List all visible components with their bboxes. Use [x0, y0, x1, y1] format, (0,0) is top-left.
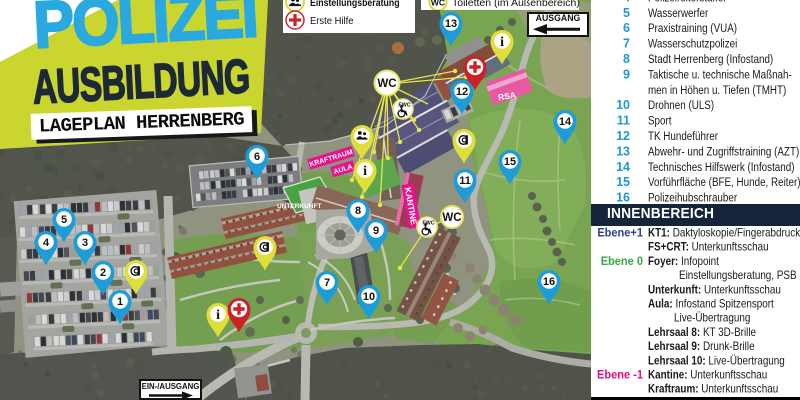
svg-text:FWC: FWC — [422, 221, 434, 227]
svg-text:12: 12 — [456, 86, 468, 98]
svg-text:7: 7 — [623, 37, 630, 51]
svg-text:3: 3 — [82, 237, 88, 249]
svg-text:WC: WC — [442, 212, 461, 224]
svg-text:i: i — [500, 35, 504, 50]
svg-text:Vorführfläche (BFE, Hunde, Rei: Vorführfläche (BFE, Hunde, Reiter) — [648, 176, 800, 189]
svg-text:5: 5 — [61, 214, 67, 226]
svg-text:Ebene 0: Ebene 0 — [601, 256, 643, 268]
svg-text:2: 2 — [100, 267, 106, 279]
svg-text:Sport: Sport — [648, 115, 672, 128]
svg-text:Ebene -1: Ebene -1 — [597, 369, 644, 381]
svg-text:WC: WC — [377, 78, 396, 90]
svg-text:Technisches Hilfswerk (Infosta: Technisches Hilfswerk (Infostand) — [648, 161, 795, 174]
svg-text:Kantine: Unterkunftsschau: Kantine: Unterkunftsschau — [648, 369, 767, 382]
svg-text:4: 4 — [623, 0, 630, 4]
svg-text:9: 9 — [623, 67, 630, 81]
svg-text:1: 1 — [117, 296, 123, 308]
svg-text:13: 13 — [445, 18, 457, 30]
svg-text:16: 16 — [543, 276, 555, 288]
svg-text:FWC: FWC — [398, 103, 410, 109]
svg-text:Einstellungsberatung, PSB: Einstellungsberatung, PSB — [679, 269, 797, 282]
svg-text:i: i — [216, 308, 220, 323]
svg-text:13: 13 — [616, 144, 630, 158]
svg-text:5: 5 — [623, 6, 630, 20]
svg-text:Lehrsaal 10: Live-Übertragung: Lehrsaal 10: Live-Übertragung — [648, 355, 785, 368]
svg-text:12: 12 — [616, 129, 630, 143]
svg-text:9: 9 — [373, 225, 379, 237]
svg-text:FS+CRT: Unterkunftsschau: FS+CRT: Unterkunftsschau — [648, 241, 769, 254]
svg-text:6: 6 — [623, 21, 630, 35]
svg-text:4: 4 — [43, 237, 50, 249]
svg-text:11: 11 — [459, 175, 471, 187]
svg-text:Unterkunft: Unterkunftsschau: Unterkunft: Unterkunftsschau — [648, 284, 781, 297]
svg-text:14: 14 — [559, 116, 572, 128]
svg-text:Lehrsaal 8: KT 3D-Brille: Lehrsaal 8: KT 3D-Brille — [648, 326, 756, 339]
svg-text:10: 10 — [363, 291, 375, 303]
svg-text:i: i — [363, 164, 367, 179]
svg-text:WC: WC — [431, 0, 445, 8]
svg-text:16: 16 — [616, 191, 630, 205]
svg-text:Stadt Herrenberg (Infostand): Stadt Herrenberg (Infostand) — [648, 53, 773, 66]
svg-text:men in Höhen u. Tiefen (TMHT): men in Höhen u. Tiefen (TMHT) — [648, 84, 786, 97]
svg-text:Abwehr- und Zugriffstraining (: Abwehr- und Zugriffstraining (AZT) — [648, 146, 799, 159]
svg-text:11: 11 — [617, 114, 630, 128]
svg-text:Erste Hilfe: Erste Hilfe — [310, 16, 354, 28]
svg-text:7: 7 — [324, 277, 330, 289]
svg-text:Einstellungsberatung: Einstellungsberatung — [310, 0, 400, 9]
svg-text:Foyer: Infopoint: Foyer: Infopoint — [648, 255, 719, 268]
svg-text:Live-Übertragung: Live-Übertragung — [674, 312, 750, 325]
svg-text:Polizeireiterstaffel: Polizeireiterstaffel — [648, 0, 725, 5]
svg-text:Ebene+1: Ebene+1 — [597, 227, 643, 239]
svg-text:15: 15 — [504, 156, 516, 168]
svg-text:Lehrsaal 9: Drunk-Brille: Lehrsaal 9: Drunk-Brille — [648, 340, 755, 353]
svg-text:TK Hundeführer: TK Hundeführer — [648, 130, 718, 143]
svg-text:Polizeihubschrauber: Polizeihubschrauber — [648, 192, 737, 205]
svg-text:Taktische u. technische Maßnah: Taktische u. technische Maßnah- — [648, 69, 792, 82]
svg-text:15: 15 — [616, 175, 630, 189]
svg-text:Wasserwerfer: Wasserwerfer — [648, 7, 709, 20]
svg-text:8: 8 — [355, 205, 361, 217]
svg-text:Drohnen (ULS): Drohnen (ULS) — [648, 99, 714, 112]
svg-text:Kraftraum: Unterkunftsschau: Kraftraum: Unterkunftsschau — [648, 383, 778, 396]
svg-text:Aula: Infostand Spitzensport: Aula: Infostand Spitzensport — [648, 298, 774, 311]
svg-text:Praxistraining (VUA): Praxistraining (VUA) — [648, 22, 737, 35]
svg-text:KT1: Daktyloskopie/Fingerabdru: KT1: Daktyloskopie/Fingerabdruck — [648, 227, 800, 240]
svg-text:10: 10 — [616, 98, 630, 112]
svg-text:8: 8 — [623, 52, 630, 66]
svg-text:Wasserschutzpolizei: Wasserschutzpolizei — [648, 38, 737, 51]
svg-text:14: 14 — [616, 160, 630, 174]
svg-text:Toiletten (im Außenbereich): Toiletten (im Außenbereich) — [452, 0, 580, 9]
svg-text:UNTERKUNFT: UNTERKUNFT — [277, 203, 321, 210]
